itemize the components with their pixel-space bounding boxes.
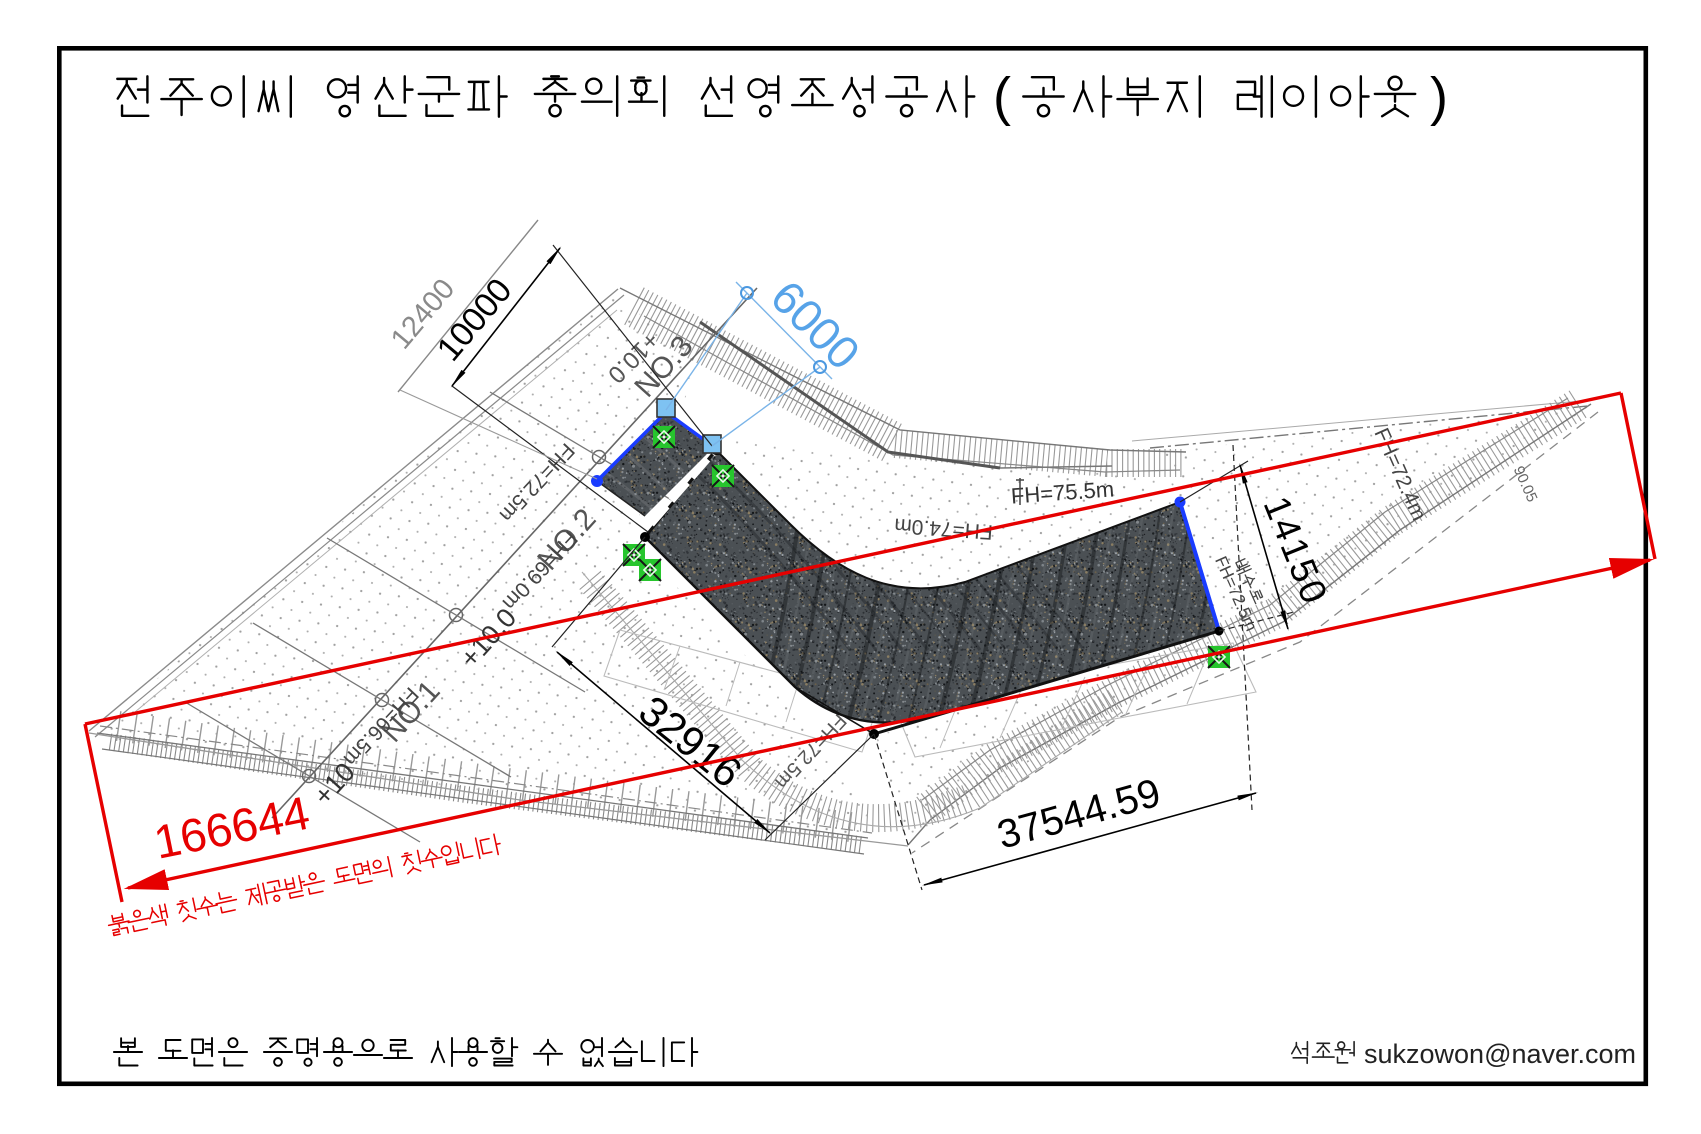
svg-text:37544.59: 37544.59 xyxy=(993,771,1166,858)
svg-text:): ) xyxy=(1430,67,1448,127)
svg-text:(: ( xyxy=(993,67,1011,127)
svg-text:sukzowon@naver.com: sukzowon@naver.com xyxy=(1364,1039,1636,1069)
svg-text:90.05: 90.05 xyxy=(1510,464,1541,505)
svg-text:166644: 166644 xyxy=(149,786,313,869)
